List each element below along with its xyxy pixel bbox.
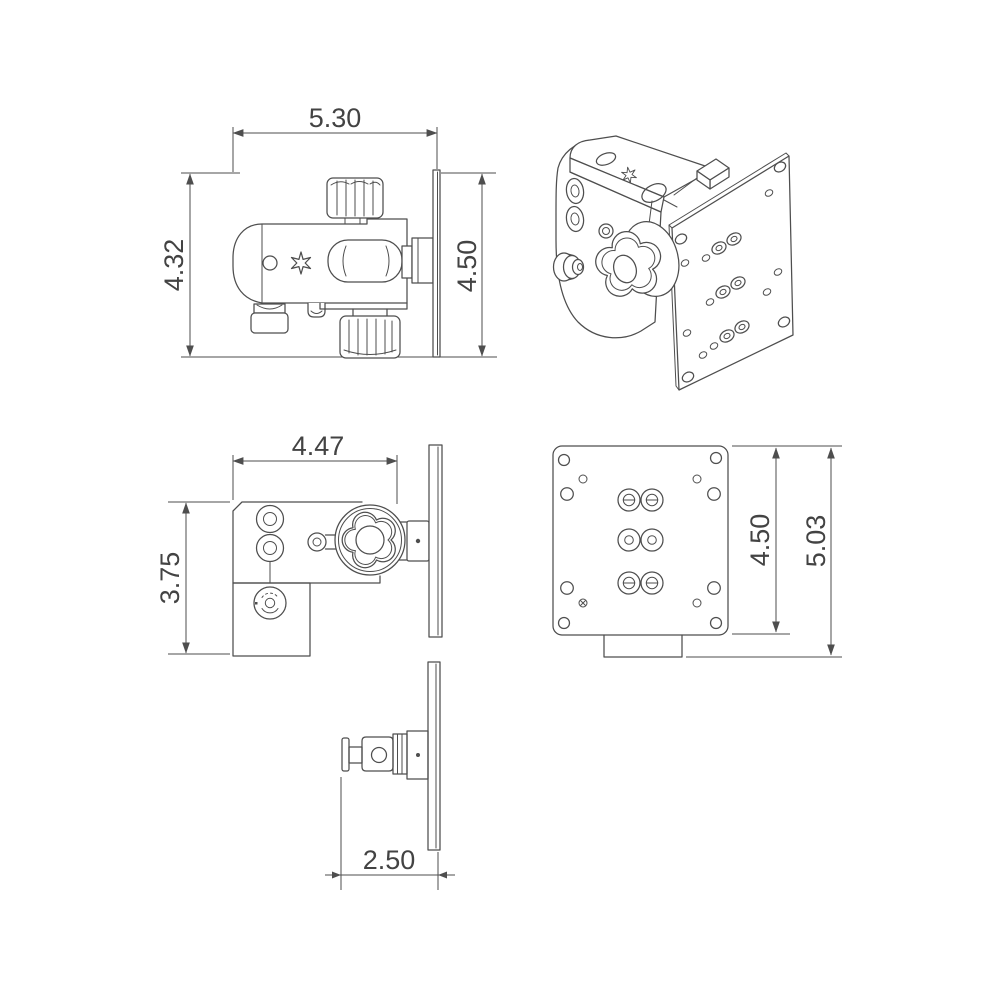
dial-center <box>265 598 274 607</box>
tension-dial <box>254 587 286 619</box>
dial-arc <box>262 609 278 613</box>
washer-pair <box>257 506 284 584</box>
plate-edge <box>428 662 440 850</box>
dim-label-overall-height: 5.03 <box>801 515 831 568</box>
dim-label-inner-height: 4.50 <box>745 514 775 567</box>
corner-hole <box>711 453 722 464</box>
vesa-hole <box>561 582 574 595</box>
plate-edge <box>433 170 440 357</box>
mounting-stud <box>342 731 428 779</box>
top-view: 4.47 3.75 <box>155 431 442 656</box>
hole-inner <box>625 536 634 545</box>
barrel-cylinder <box>328 240 402 282</box>
bottom-view: 2.50 <box>325 662 455 890</box>
vesa-hole <box>708 582 721 595</box>
plate-edge-outline <box>429 445 442 637</box>
technical-drawing: 5.30 4.32 4.50 <box>0 0 1000 1000</box>
bottom-strip <box>320 303 407 309</box>
foot-lower <box>251 313 288 333</box>
knob-outer-circle <box>335 505 405 575</box>
washer-inner <box>264 542 277 555</box>
corner-hole <box>711 618 722 629</box>
side-view: 5.30 4.32 4.50 <box>159 103 497 358</box>
plate-boss <box>412 238 433 283</box>
stud-hole <box>372 748 387 763</box>
washer-outer <box>257 535 284 562</box>
dim-label-body-height: 3.75 <box>155 552 185 605</box>
plate-edge <box>429 445 442 637</box>
iso-plate <box>669 153 793 390</box>
small-hole <box>579 475 587 483</box>
plate-connector <box>407 521 429 561</box>
dial-ticks <box>262 593 278 597</box>
small-hole <box>693 599 701 607</box>
pin-head-inner <box>313 538 321 546</box>
corner-hole <box>559 455 570 466</box>
plate-face <box>672 156 793 390</box>
bottom-knob <box>340 316 400 358</box>
stud-neck <box>349 747 362 763</box>
vesa-hole <box>708 488 721 501</box>
drawing-canvas: 5.30 4.32 4.50 <box>0 0 1000 1000</box>
dim-plate-height: 4.50 <box>441 173 496 356</box>
dim-label-depth: 4.47 <box>292 431 345 461</box>
arrow-right <box>438 872 447 879</box>
stud-cap <box>342 738 349 771</box>
hole-outer <box>641 529 663 551</box>
dim-depth: 4.47 <box>233 431 397 504</box>
dial-outer <box>254 587 286 619</box>
connector-screw <box>416 539 420 543</box>
left-foot <box>251 304 288 333</box>
washer-outer <box>257 506 284 533</box>
pin-end-outer <box>599 224 613 238</box>
base-screw <box>416 753 420 757</box>
bottom-tab <box>308 303 325 317</box>
knob-stem <box>345 218 360 224</box>
dim-label-offset: 2.50 <box>363 845 416 875</box>
corner-hole <box>559 618 570 629</box>
hole-inner <box>648 536 657 545</box>
dim-label-plate-height: 4.50 <box>452 240 482 293</box>
arrow-left <box>332 872 341 879</box>
plate-tab <box>604 635 682 657</box>
dim-body-height: 3.75 <box>155 502 230 654</box>
stud-taper <box>393 734 407 774</box>
dim-label-width: 5.30 <box>309 103 362 133</box>
isometric-view <box>554 136 794 390</box>
hole-outer <box>618 529 640 551</box>
plate-edge-outline <box>433 170 440 357</box>
top-knob <box>327 178 383 224</box>
set-screw <box>579 599 587 607</box>
vesa-hole <box>561 488 574 501</box>
dim-width: 5.30 <box>233 103 437 172</box>
star-knob <box>335 505 405 575</box>
shaft-step <box>402 246 412 278</box>
center-screw-pattern <box>618 489 663 594</box>
pin-head-outer <box>308 533 326 551</box>
stud-barrel <box>362 737 393 771</box>
plate-front-view: 4.50 5.03 <box>553 446 842 657</box>
dim-label-overall-height: 4.32 <box>159 239 189 292</box>
bottom-knob-neck <box>353 309 387 316</box>
plate-edge-outline <box>428 662 440 850</box>
washer-inner <box>264 513 277 526</box>
dial-dot <box>255 602 258 605</box>
small-hole <box>693 475 701 483</box>
